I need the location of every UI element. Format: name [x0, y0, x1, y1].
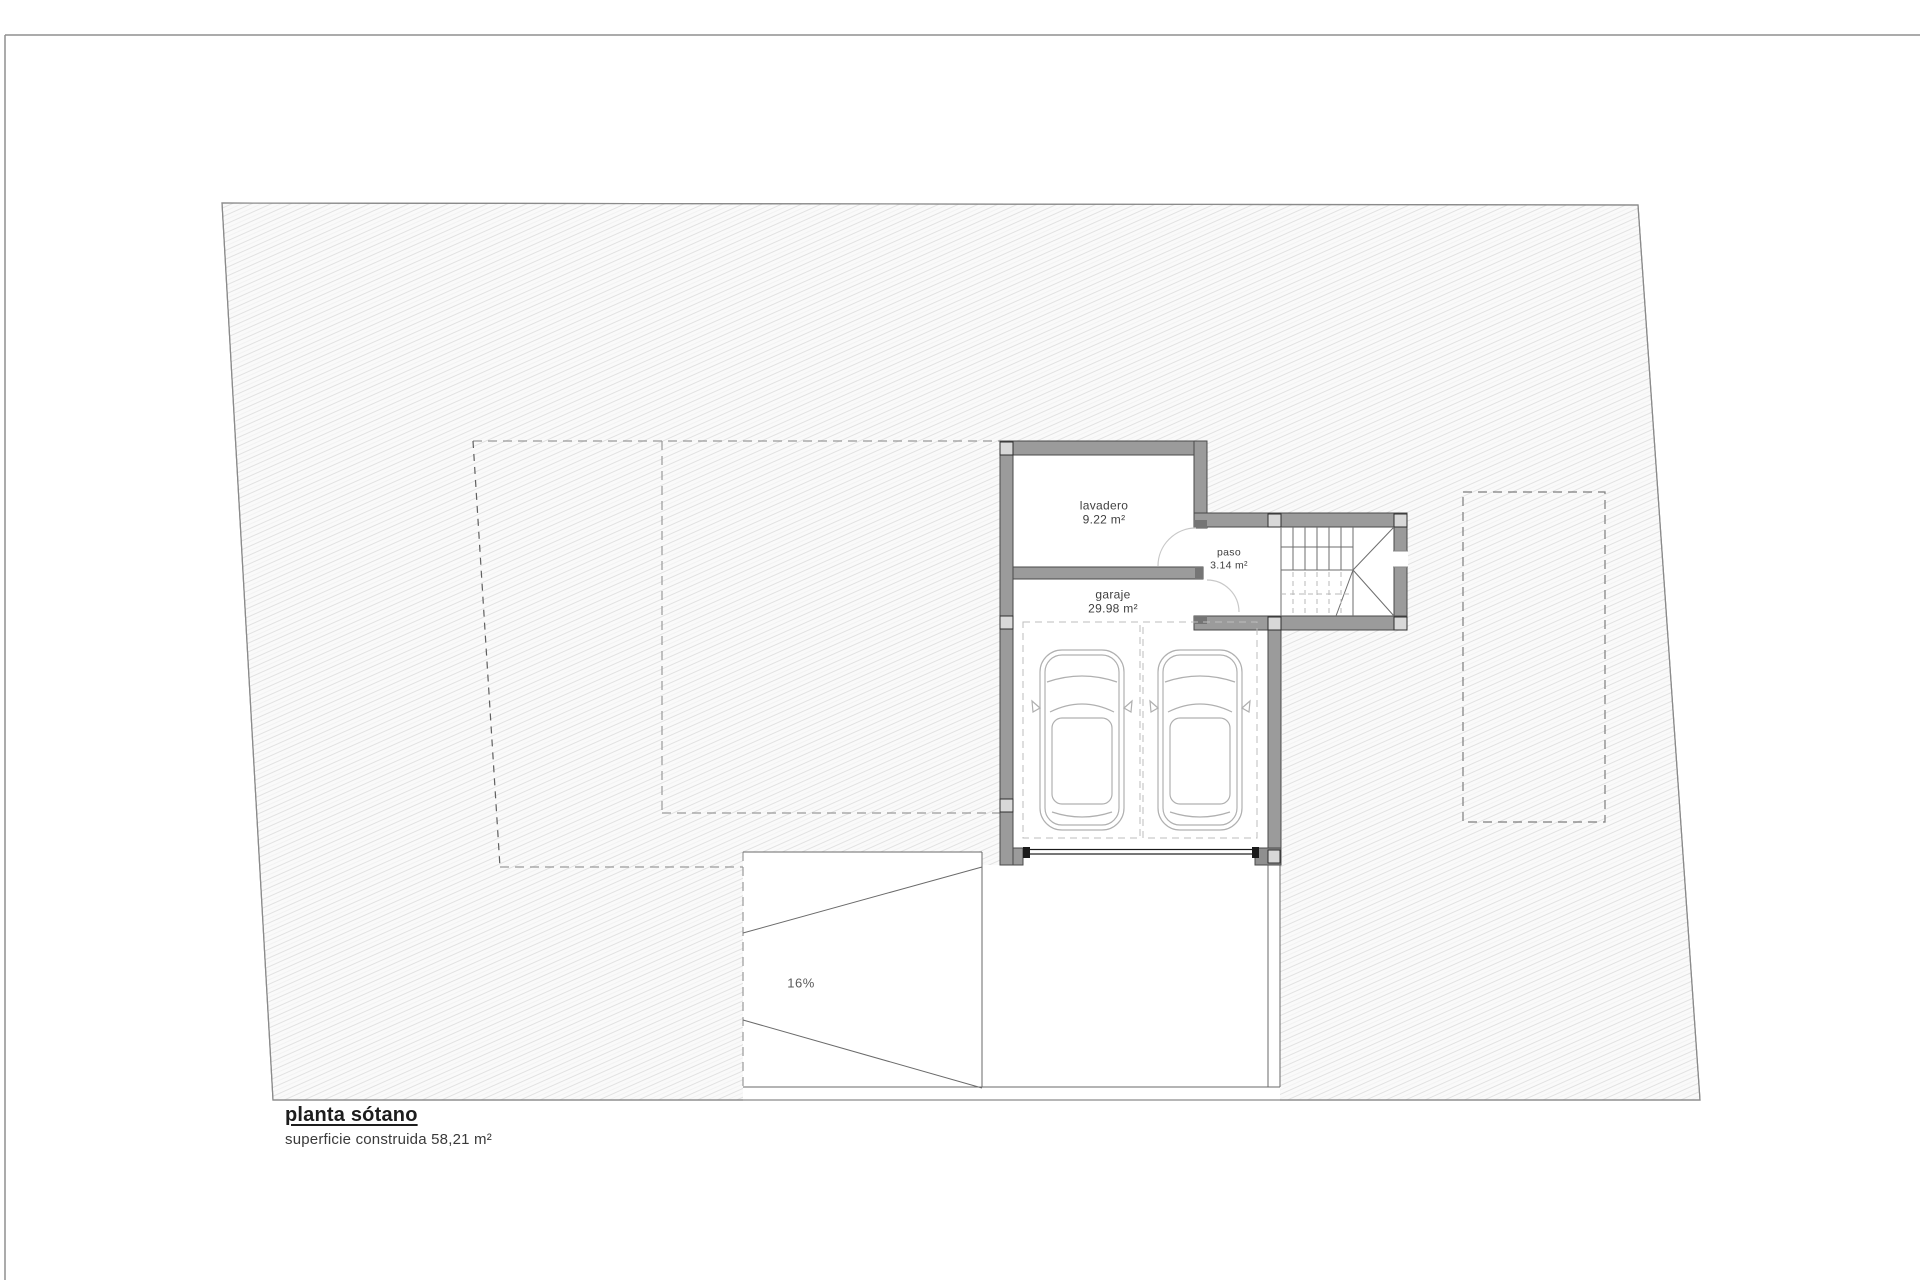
room-area: 9.22 m² [1080, 513, 1128, 527]
wall-cap [1194, 616, 1207, 624]
garage-door-jamb-left [1023, 847, 1030, 858]
car-right [1150, 650, 1250, 830]
room-area: 3.14 m² [1210, 559, 1248, 572]
wall-garage-right [1268, 616, 1281, 865]
room-label-garaje: garaje 29.98 m² [1088, 588, 1138, 617]
room-label-paso: paso 3.14 m² [1210, 546, 1248, 571]
floor-plan-canvas: lavadero 9.22 m² paso 3.14 m² garaje 29.… [0, 0, 1920, 1280]
stair-wall-window [1393, 551, 1408, 567]
title-block: planta sótano superficie construida 58,2… [285, 1104, 492, 1148]
pillar [1268, 617, 1281, 630]
wall-stair-top [1194, 513, 1407, 527]
wall-lavadero-garage-divider [1013, 567, 1203, 579]
wall-cap [1194, 520, 1207, 528]
pillar [1268, 850, 1280, 863]
plan-title: planta sótano [285, 1104, 492, 1127]
room-name: paso [1210, 546, 1248, 559]
wall-stair-bottom [1194, 616, 1407, 630]
wall-top [1000, 441, 1207, 455]
ramp-slope-label: 16% [787, 976, 815, 991]
wall-cap [1195, 567, 1203, 579]
room-name: garaje [1088, 588, 1138, 602]
garage-door-jamb-right [1252, 847, 1259, 858]
wall-bottom-left-corner [1013, 848, 1023, 865]
wall-stair-right [1394, 513, 1407, 630]
ramp-and-driveway-area [743, 852, 1280, 1101]
pillar [1394, 617, 1407, 630]
basement-floor-plan-drawing [0, 0, 1920, 1280]
pillar [1000, 616, 1013, 629]
room-label-lavadero: lavadero 9.22 m² [1080, 499, 1128, 528]
pillar [1394, 514, 1407, 527]
pillar [1268, 514, 1281, 527]
built-area-note: superficie construida 58,21 m² [285, 1131, 492, 1148]
pillar [1000, 799, 1013, 812]
pillar [1000, 442, 1013, 455]
car-left [1032, 650, 1132, 830]
room-area: 29.98 m² [1088, 602, 1138, 616]
room-name: lavadero [1080, 499, 1128, 513]
